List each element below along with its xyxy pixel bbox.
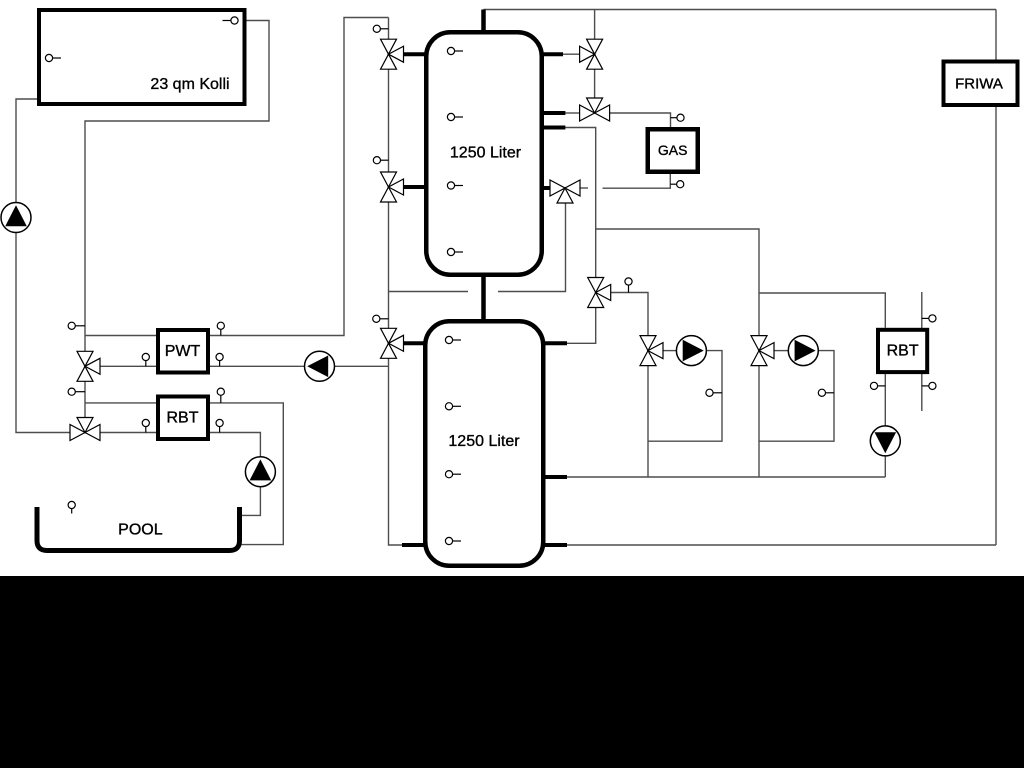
svg-text:FRIWA: FRIWA <box>955 76 1003 93</box>
svg-text:RBT: RBT <box>167 410 199 427</box>
svg-text:1250 Liter: 1250 Liter <box>448 433 520 450</box>
svg-text:1250 Liter: 1250 Liter <box>450 145 522 162</box>
svg-text:23 qm Kolli: 23 qm Kolli <box>150 76 229 93</box>
svg-text:PWT: PWT <box>165 343 201 360</box>
svg-text:RBT: RBT <box>887 343 919 360</box>
svg-text:GAS: GAS <box>658 142 688 158</box>
svg-text:POOL: POOL <box>118 522 163 539</box>
